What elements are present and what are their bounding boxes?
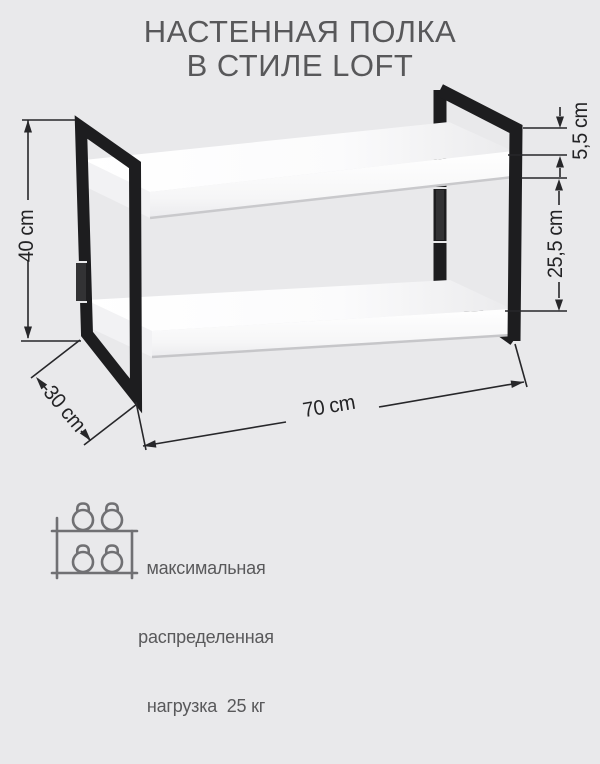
frame-joint-notch	[75, 261, 87, 263]
frame-joint	[76, 263, 86, 301]
dimension-label-shelf-spacing: 25,5 cm	[544, 210, 568, 278]
dimension-label-height: 40 cm	[15, 210, 39, 262]
frame-joint-notch	[75, 301, 87, 303]
kettlebells-on-shelf-icon	[52, 504, 137, 579]
dim-70-ext-right	[515, 344, 527, 387]
load-note-line-2: распределенная	[138, 626, 274, 649]
load-note: максимальная распределенная нагрузка 25 …	[138, 511, 274, 764]
load-note-line-1: максимальная	[138, 557, 274, 580]
bottom-shelf	[86, 280, 512, 357]
product-diagram: НАСТЕННАЯ ПОЛКА В СТИЛЕ LOFT	[0, 0, 600, 584]
arrow-40-top	[24, 120, 32, 133]
load-note-line-3: нагрузка 25 кг	[138, 695, 274, 718]
top-shelf	[84, 122, 513, 218]
arrow-55-top	[556, 117, 564, 129]
dim-30-ext-back	[31, 340, 80, 378]
frame-joint-notch	[434, 187, 447, 189]
frame-joint	[436, 190, 444, 240]
arrow-255-top	[555, 179, 563, 191]
frame-joint-notch	[434, 241, 447, 243]
arrow-30-front	[80, 429, 91, 441]
arrow-255-bottom	[555, 300, 563, 312]
arrow-55-bottom	[556, 156, 564, 168]
dimension-label-top-offset: 5,5 cm	[569, 102, 593, 160]
dim-30-ext-front	[84, 404, 137, 445]
shelf-technical-drawing	[0, 0, 600, 584]
arrow-40-bottom	[24, 327, 32, 340]
icon-kettlebells	[73, 504, 122, 573]
